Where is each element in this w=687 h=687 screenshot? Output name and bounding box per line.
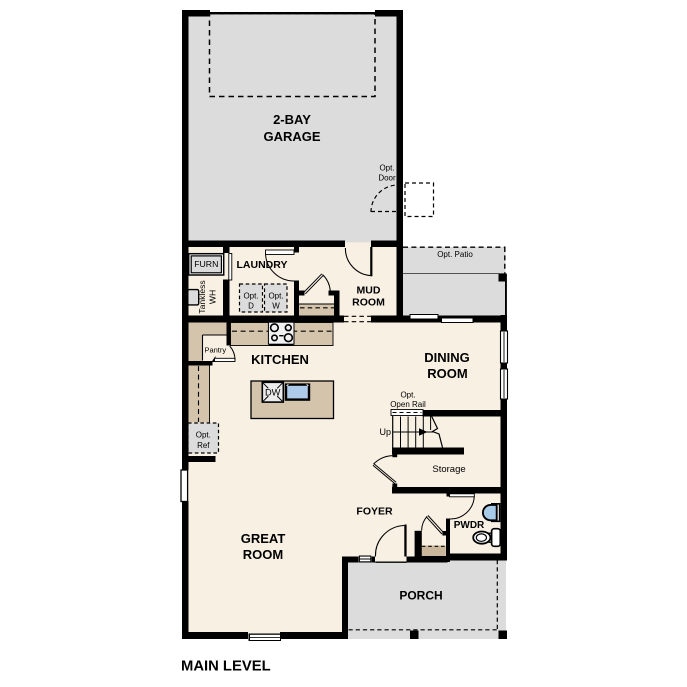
svg-text:ROOM: ROOM xyxy=(352,297,385,309)
svg-text:DW: DW xyxy=(265,388,281,398)
svg-text:KITCHEN: KITCHEN xyxy=(251,352,309,367)
svg-text:DINING: DINING xyxy=(424,350,470,365)
svg-text:PORCH: PORCH xyxy=(399,589,442,603)
svg-text:LAUNDRY: LAUNDRY xyxy=(237,259,288,271)
svg-text:W: W xyxy=(272,302,280,311)
svg-text:Pantry: Pantry xyxy=(204,345,226,354)
svg-text:PWDR: PWDR xyxy=(454,520,485,531)
svg-text:FOYER: FOYER xyxy=(356,506,393,518)
svg-text:Up: Up xyxy=(379,427,391,437)
svg-text:Open Rail: Open Rail xyxy=(390,400,426,409)
svg-text:Ref: Ref xyxy=(197,441,210,450)
svg-text:Opt.: Opt. xyxy=(243,292,258,301)
svg-text:ROOM: ROOM xyxy=(427,366,467,381)
svg-text:MUD: MUD xyxy=(357,285,381,297)
svg-text:Opt.: Opt. xyxy=(400,391,415,400)
svg-text:2-BAY: 2-BAY xyxy=(273,112,311,127)
svg-text:Opt.: Opt. xyxy=(196,431,211,440)
svg-text:Door: Door xyxy=(378,174,396,183)
svg-text:GARAGE: GARAGE xyxy=(263,129,320,144)
svg-text:MAIN LEVEL: MAIN LEVEL xyxy=(181,659,271,675)
svg-text:D: D xyxy=(248,302,254,311)
svg-text:GREAT: GREAT xyxy=(241,531,286,546)
svg-text:FURN: FURN xyxy=(194,259,218,269)
svg-text:Opt.: Opt. xyxy=(379,164,394,173)
svg-text:ROOM: ROOM xyxy=(243,547,283,562)
svg-text:Opt. Patio: Opt. Patio xyxy=(437,250,473,259)
svg-text:Storage: Storage xyxy=(432,464,465,475)
svg-text:Opt.: Opt. xyxy=(268,292,283,301)
